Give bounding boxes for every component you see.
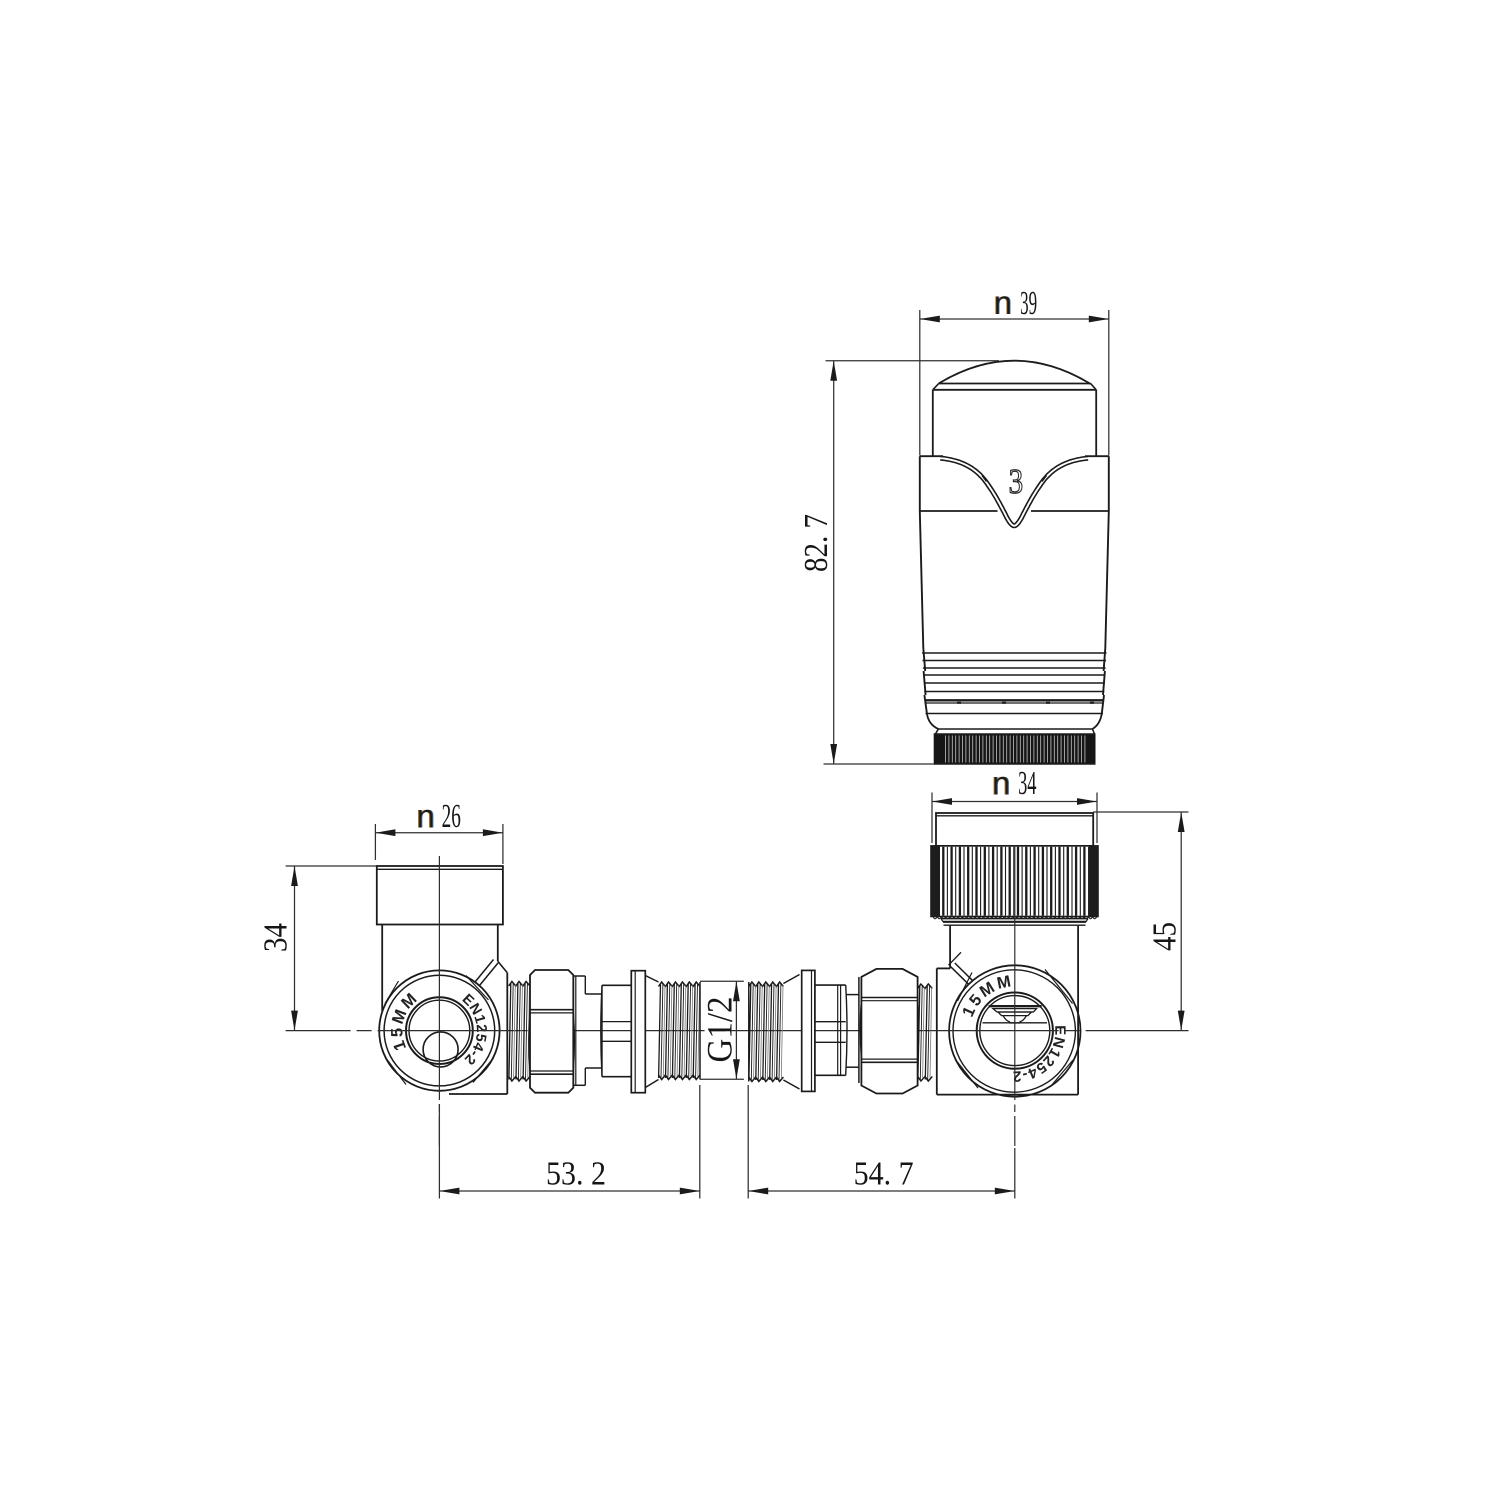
svg-text:54. 7: 54. 7 [854,1156,914,1193]
svg-text:82. 7: 82. 7 [798,514,835,572]
svg-text:n: n [992,765,1010,802]
svg-text:34: 34 [1018,765,1036,802]
svg-text:26: 26 [442,798,461,835]
svg-text:n: n [994,284,1012,321]
svg-text:39: 39 [1020,285,1037,322]
svg-text:53. 2: 53. 2 [546,1156,606,1193]
svg-text:G1/2: G1/2 [700,997,740,1063]
svg-text:45: 45 [1146,922,1183,951]
svg-text:n: n [417,798,435,835]
svg-text:3: 3 [1009,462,1024,501]
svg-text:34: 34 [258,923,295,952]
